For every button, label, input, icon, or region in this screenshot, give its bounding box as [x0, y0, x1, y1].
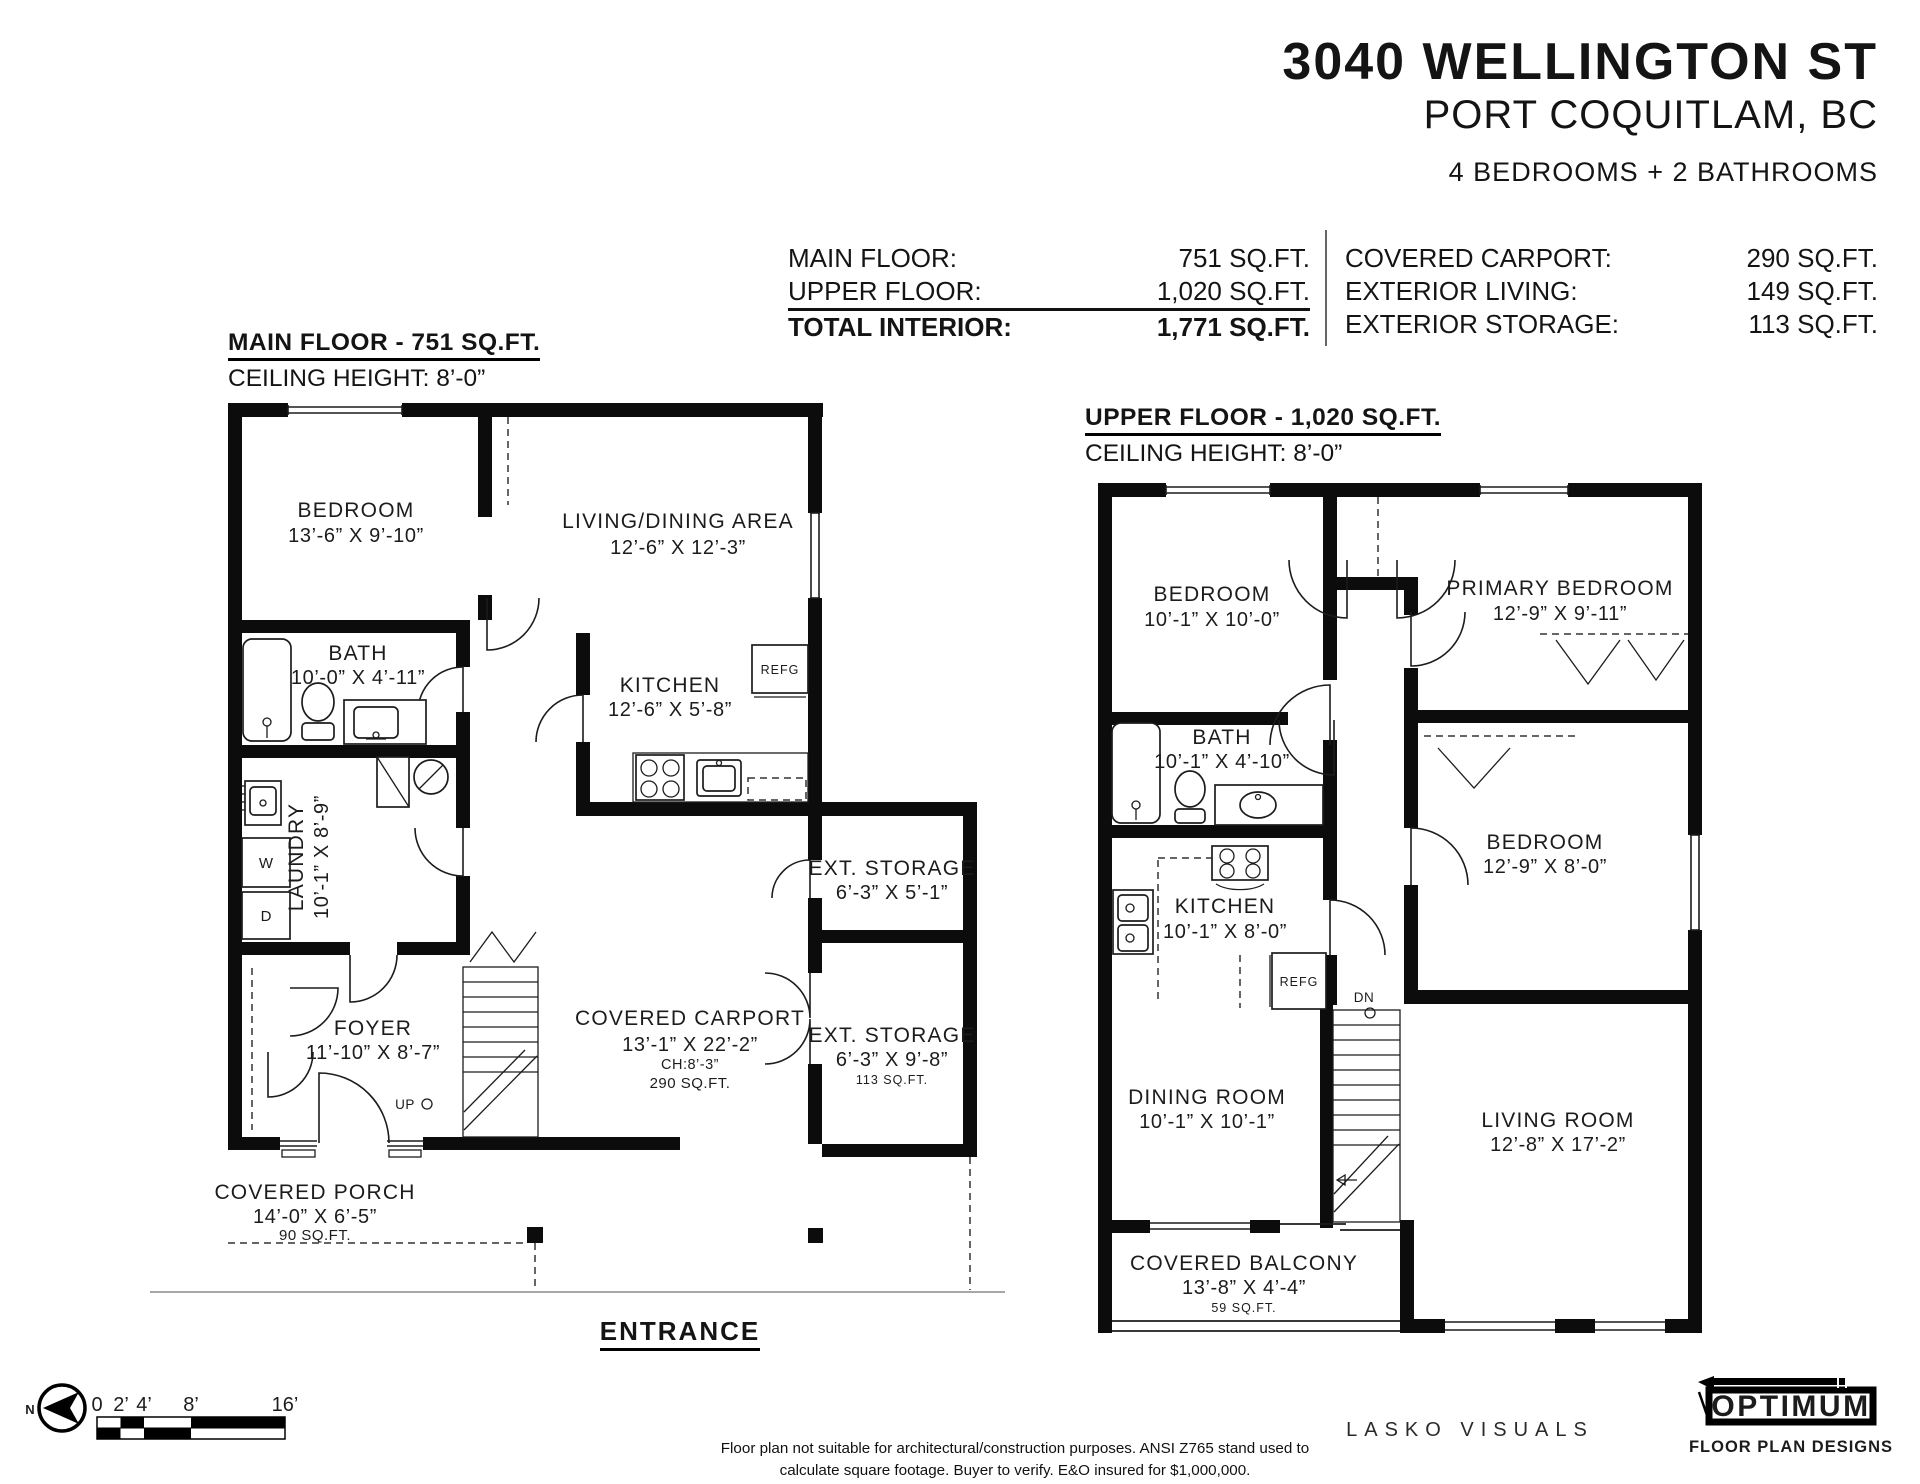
upper-toilet — [1175, 771, 1205, 823]
ext-storage-2-area: 113 SQ.FT. — [856, 1073, 928, 1087]
room-label-dining: DINING ROOM — [1128, 1086, 1286, 1109]
room-label-laundry: LAUNDRY — [285, 803, 308, 911]
room-dims-bedroom: 13’-6” X 9’-10” — [288, 525, 424, 547]
room-dims-primary-bedroom: 12’-9” X 9’-11” — [1493, 603, 1627, 625]
room-dims-porch: 14’-0” X 6’-5” — [253, 1206, 377, 1228]
room-dims-foyer: 11’-10” X 8’-7” — [306, 1042, 440, 1064]
laundry-sink — [242, 781, 281, 825]
dryer-label: D — [261, 908, 272, 925]
optimum-logo: OPTIMUM FLOOR PLAN DESIGNS — [1689, 1376, 1893, 1456]
room-label-bedroom: BEDROOM — [298, 499, 415, 522]
upper-refrigerator-label: REFG — [1280, 975, 1319, 989]
staircase-down — [1333, 1008, 1400, 1222]
floor-plan-page: 3040 WELLINGTON ST PORT COQUITLAM, BC 4 … — [0, 0, 1920, 1484]
bathtub — [243, 639, 291, 741]
main-floor-plan: BEDROOM 13’-6” X 9’-10” LIVING/DINING AR… — [150, 403, 1005, 1292]
room-label-ext-storage-2: EXT. STORAGE — [809, 1024, 976, 1047]
scale-tick: 8’ — [183, 1394, 199, 1416]
carport-area: 290 SQ.FT. — [650, 1075, 731, 1092]
carport-ceiling-height: CH:8’-3” — [661, 1057, 719, 1073]
scale-tick: 2’ — [113, 1394, 129, 1416]
disclaimer-line-2: calculate square footage. Buyer to verif… — [710, 1460, 1320, 1482]
room-label-foyer: FOYER — [334, 1017, 412, 1040]
room-label-porch: COVERED PORCH — [214, 1181, 415, 1204]
room-dims-balcony: 13’-8” X 4’-4” — [1182, 1277, 1306, 1299]
upper-floor-doors — [1270, 560, 1468, 955]
room-label-ext-storage-1: EXT. STORAGE — [809, 857, 976, 880]
main-floor-labels: BEDROOM 13’-6” X 9’-10” LIVING/DINING AR… — [214, 499, 975, 1244]
main-floor-dashed-lines — [228, 417, 970, 1290]
bathroom-sink — [344, 700, 426, 744]
upper-double-sink — [1113, 890, 1153, 954]
room-label-carport: COVERED CARPORT — [575, 1007, 805, 1030]
room-label-upper-kitchen: KITCHEN — [1175, 895, 1276, 918]
entrance-label-block: ENTRANCE — [568, 1316, 792, 1347]
water-heater — [377, 757, 448, 807]
logo-subtitle: FLOOR PLAN DESIGNS — [1689, 1438, 1893, 1456]
room-label-kitchen: KITCHEN — [620, 674, 721, 697]
upper-bathroom-sink — [1215, 785, 1323, 825]
room-dims-kitchen: 12’-6” X 5’-8” — [608, 699, 732, 721]
disclaimer: Floor plan not suitable for architectura… — [710, 1438, 1320, 1481]
stairs-down-label: DN — [1354, 990, 1375, 1005]
room-label-balcony: COVERED BALCONY — [1130, 1252, 1358, 1275]
scale-bar: 0 2’ 4’ 8’ 16’ — [91, 1394, 298, 1439]
room-dims-ext-storage-1: 6’-3” X 5’-1” — [836, 882, 948, 904]
room-dims-bedroom-2: 10’-1” X 10’-0” — [1144, 609, 1280, 631]
room-label-living-room: LIVING ROOM — [1481, 1109, 1634, 1132]
room-label-living-dining: LIVING/DINING AREA — [562, 510, 794, 533]
room-dims-upper-bath: 10’-1” X 4’-10” — [1154, 751, 1290, 773]
porch-area: 90 SQ.FT. — [279, 1227, 351, 1244]
pencil-icon — [1714, 1378, 1846, 1385]
room-dims-dining: 10’-1” X 10’-1” — [1139, 1111, 1275, 1133]
entrance-label: ENTRANCE — [600, 1316, 760, 1351]
upper-bathtub — [1112, 723, 1160, 823]
credit-label: LASKO VISUALS — [1320, 1419, 1620, 1442]
room-dims-carport: 13’-1” X 22’-2” — [622, 1034, 758, 1056]
room-label-bedroom-2: BEDROOM — [1154, 583, 1271, 606]
stove — [636, 755, 684, 800]
room-dims-bath: 10’-0” X 4’-11” — [291, 667, 425, 689]
floor-plan-drawing: BEDROOM 13’-6” X 9’-10” LIVING/DINING AR… — [0, 0, 1920, 1484]
balcony-railing — [1112, 1321, 1400, 1331]
room-label-upper-bath: BATH — [1192, 726, 1251, 749]
toilet — [302, 683, 334, 740]
room-label-primary-bedroom: PRIMARY BEDROOM — [1446, 577, 1673, 600]
north-label: N — [25, 1402, 34, 1417]
room-label-bath: BATH — [328, 642, 387, 665]
room-dims-bedroom-3: 12’-9” X 8’-0” — [1483, 856, 1607, 878]
upper-floor-labels: BEDROOM 10’-1” X 10’-0” PRIMARY BEDROOM … — [1128, 577, 1674, 1315]
upper-stove — [1212, 846, 1268, 890]
room-dims-living-room: 12’-8” X 17’-2” — [1490, 1134, 1626, 1156]
kitchen-sink — [697, 760, 741, 796]
staircase-up — [422, 932, 538, 1137]
scale-tick: 0 — [91, 1394, 102, 1416]
room-dims-upper-kitchen: 10’-1” X 8’-0” — [1163, 921, 1287, 943]
balcony-area: 59 SQ.FT. — [1211, 1301, 1276, 1315]
room-dims-ext-storage-2: 6’-3” X 9’-8” — [836, 1049, 948, 1071]
logo-name: OPTIMUM — [1711, 1390, 1870, 1423]
room-dims-laundry: 10’-1” X 8’-9” — [311, 795, 333, 919]
scale-tick: 16’ — [272, 1394, 299, 1416]
north-arrow-icon: N — [25, 1385, 85, 1431]
washer-label: W — [259, 855, 274, 872]
upper-floor-plan: BEDROOM 10’-1” X 10’-0” PRIMARY BEDROOM … — [1098, 483, 1702, 1333]
scale-tick: 4’ — [136, 1394, 152, 1416]
room-label-bedroom-3: BEDROOM — [1487, 831, 1604, 854]
refrigerator-label: REFG — [761, 663, 800, 677]
room-dims-living-dining: 12’-6” X 12’-3” — [610, 537, 746, 559]
disclaimer-line-1: Floor plan not suitable for architectura… — [710, 1438, 1320, 1460]
stairs-up-label: UP — [395, 1097, 415, 1112]
